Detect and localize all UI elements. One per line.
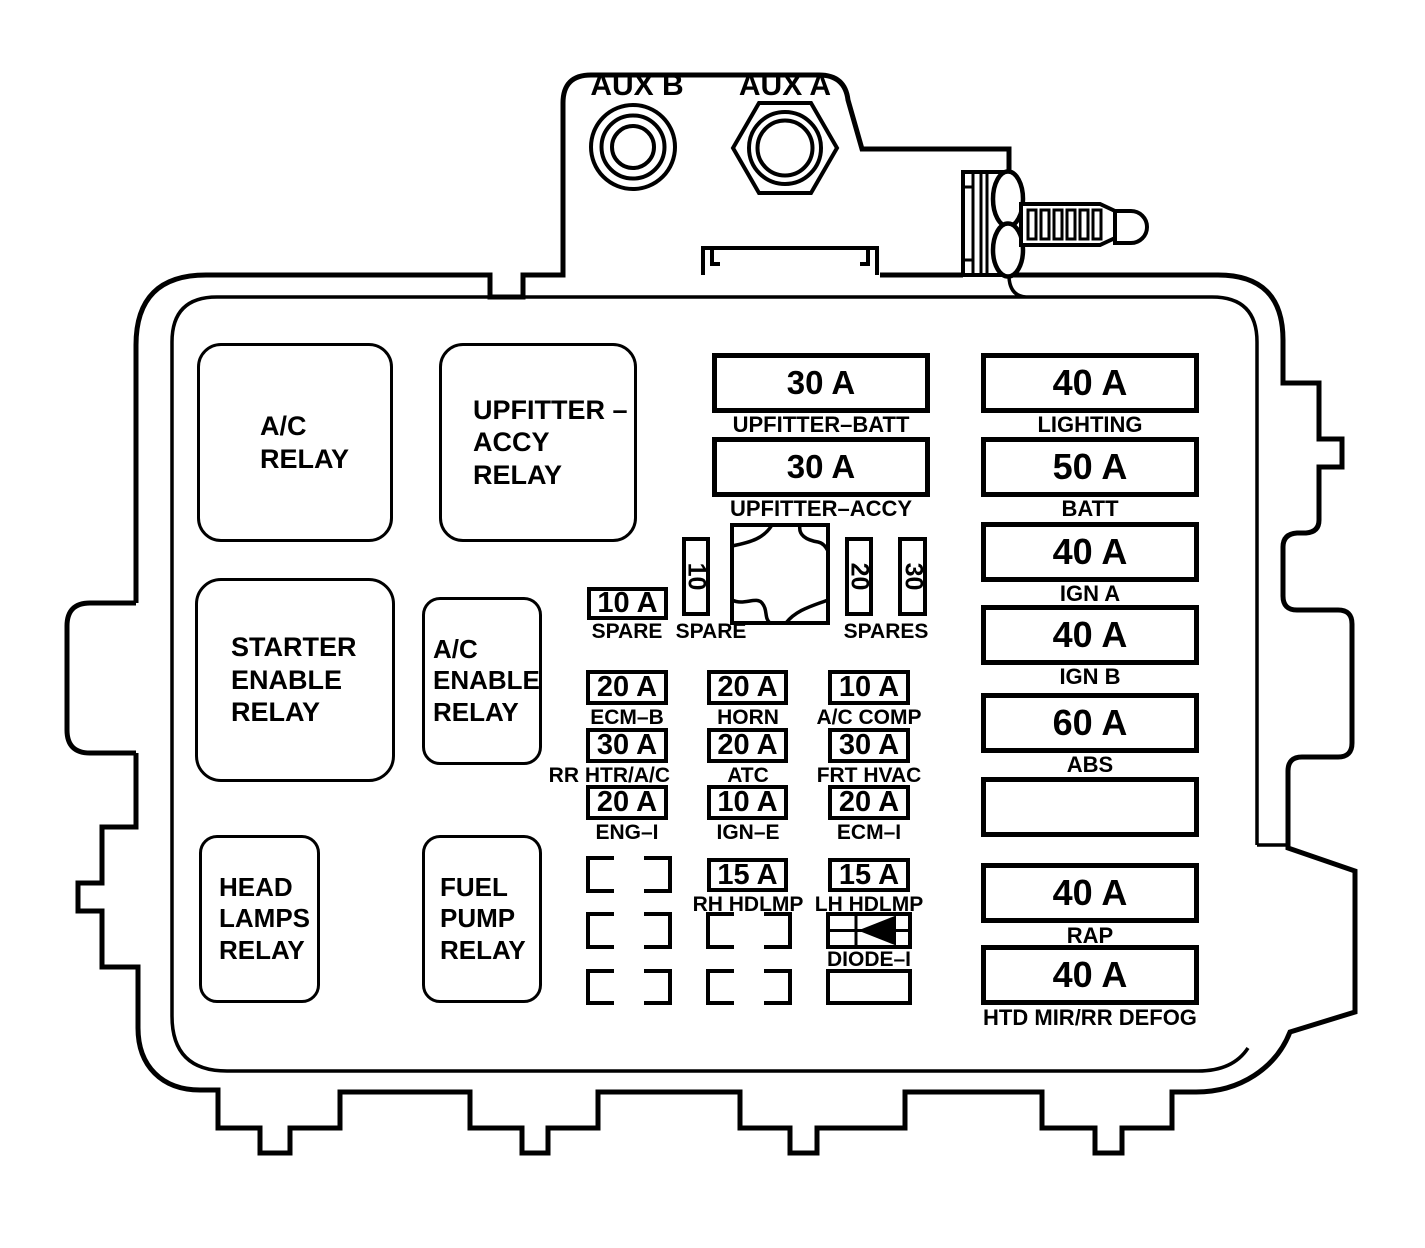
spares-group-label: SPARES	[821, 619, 951, 645]
fuse-lighting-label: LIGHTING	[981, 412, 1199, 438]
fuse-abs: 60 A	[981, 693, 1199, 753]
diode-symbol	[828, 914, 910, 947]
fuel-pump-relay-label: FUEL PUMP RELAY	[425, 872, 526, 966]
fuse-ign-e: 10 A	[707, 785, 788, 820]
starter-enable-relay-label: STARTER ENABLE RELAY	[198, 631, 357, 728]
fuse-ign-a-label: IGN A	[981, 581, 1199, 607]
diode-i-label: DIODE–I	[789, 947, 949, 973]
fuse-abs-label: ABS	[981, 752, 1199, 778]
fuse-frt-hvac: 30 A	[828, 728, 910, 763]
fuse-htd-mir-rr-defog: 40 A	[981, 945, 1199, 1005]
fuse-rh-hdlmp: 15 A	[707, 858, 788, 892]
aux-tab-notch	[703, 248, 877, 275]
head-lamps-relay: HEAD LAMPS RELAY	[199, 835, 320, 1003]
fuse-ign-b: 40 A	[981, 605, 1199, 665]
fuse-rap: 40 A	[981, 863, 1199, 923]
spare-mini-fuse-20-amp: 20	[845, 563, 874, 591]
fuse-ecm-b: 20 A	[586, 670, 668, 705]
fuse-horn: 20 A	[707, 670, 788, 705]
fuse-eng-i: 20 A	[586, 785, 668, 820]
ac-relay: A/C RELAY	[197, 343, 393, 542]
empty-slot-bracket	[708, 971, 790, 1003]
starter-enable-relay: STARTER ENABLE RELAY	[195, 578, 395, 782]
upfitter-accy-relay-label: UPFITTER – ACCY RELAY	[442, 394, 628, 491]
blank-fuse-position	[828, 971, 910, 1003]
fuse-ac-comp: 10 A	[828, 670, 910, 705]
fuse-ign-b-label: IGN B	[981, 664, 1199, 690]
aux-a-stud	[733, 103, 837, 193]
fuse-ecm-i-label: ECM–I	[789, 820, 949, 846]
fuse-batt: 50 A	[981, 437, 1199, 497]
left-mounting-bump	[67, 603, 136, 753]
fuse-ecm-i: 20 A	[828, 785, 910, 820]
spare-mini-fuse-10-label: SPARE	[651, 619, 771, 645]
empty-slot-bracket	[588, 971, 670, 1003]
fuse-rr-htr-ac: 30 A	[586, 728, 668, 763]
aux-b-label: AUX B	[577, 70, 697, 102]
aux-a-label: AUX A	[725, 70, 845, 102]
head-lamps-relay-label: HEAD LAMPS RELAY	[202, 872, 310, 966]
empty-slot-bracket	[588, 914, 670, 947]
upfitter-accy-relay: UPFITTER – ACCY RELAY	[439, 343, 637, 542]
wing-nut-lobe-bottom	[993, 224, 1023, 277]
underhood-fuse-box-diagram: AUX B AUX A A/C RELAY UPFITTER – ACCY RE…	[0, 0, 1425, 1248]
fuse-lh-hdlmp: 15 A	[828, 858, 910, 892]
ac-enable-relay: A/C ENABLE RELAY	[422, 597, 542, 765]
fuse-empty-position	[981, 777, 1199, 837]
bolt-tip	[1115, 211, 1147, 243]
fuse-lh-hdlmp-label: LH HDLMP	[789, 892, 949, 918]
breaker-pattern-box	[732, 525, 828, 623]
aux-b-stud	[591, 105, 675, 189]
fuse-upfitter-accy: 30 A	[712, 437, 930, 497]
fuse-atc: 20 A	[707, 728, 788, 763]
spare-mini-fuse-10-amp: 10	[682, 563, 711, 591]
spare-mini-fuse-20: 20	[845, 537, 873, 616]
spare-fuse-10a: 10 A	[587, 587, 668, 620]
stud-bolt-assembly	[963, 172, 1147, 277]
spare-mini-fuse-10: 10	[682, 537, 710, 616]
fuel-pump-relay: FUEL PUMP RELAY	[422, 835, 542, 1003]
fuse-lighting: 40 A	[981, 353, 1199, 413]
empty-slot-bracket	[588, 858, 670, 891]
ac-relay-label: A/C RELAY	[200, 410, 349, 475]
wing-nut-lobe-top	[993, 172, 1023, 227]
spare-mini-fuse-30: 30	[898, 537, 927, 616]
spare-mini-fuse-30-amp: 30	[898, 563, 927, 591]
fuse-upfitter-batt-label: UPFITTER–BATT	[712, 412, 930, 438]
empty-slot-bracket	[708, 914, 790, 947]
fuse-upfitter-accy-label: UPFITTER–ACCY	[712, 496, 930, 522]
fuse-batt-label: BATT	[981, 496, 1199, 522]
ac-enable-relay-label: A/C ENABLE RELAY	[425, 634, 540, 728]
fuse-ign-a: 40 A	[981, 522, 1199, 582]
fuse-htd-mir-rr-defog-label: HTD MIR/RR DEFOG	[981, 1005, 1199, 1031]
fuse-upfitter-batt: 30 A	[712, 353, 930, 413]
